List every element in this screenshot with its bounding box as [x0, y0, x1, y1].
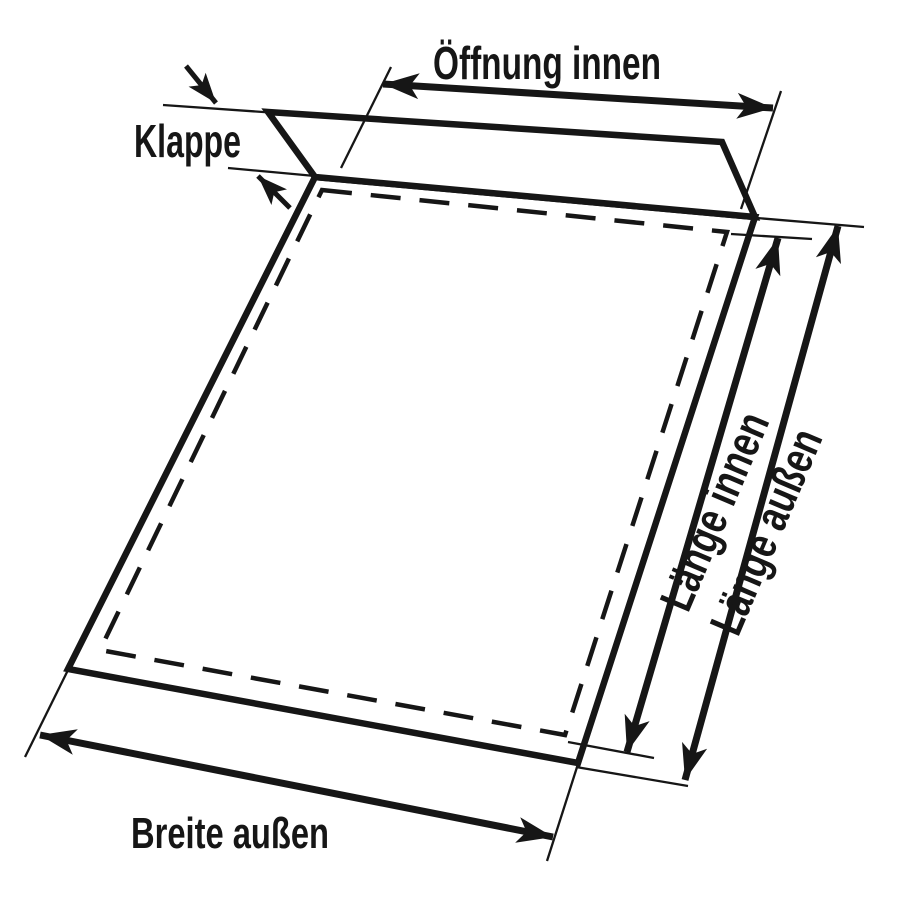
envelope-dimension-diagram: Öffnung innen Klappe Länge innen Länge a…: [0, 0, 900, 900]
label-width-outer: Breite außen: [131, 809, 329, 858]
extension-line-length-outer-top: [757, 218, 864, 227]
flap-pointer-arrow-bottom: [258, 176, 290, 208]
extension-line-width-right: [547, 764, 578, 861]
label-flap: Klappe: [134, 115, 241, 167]
diagram-canvas: Öffnung innen Klappe Länge innen Länge a…: [0, 0, 900, 900]
extension-line-width-left: [25, 666, 70, 757]
extension-line-length-outer-bottom: [576, 767, 688, 786]
extension-line-flap-bottom: [228, 168, 315, 176]
label-opening-inner: Öffnung innen: [433, 37, 661, 89]
flap-pointer-arrow-top: [186, 66, 216, 103]
